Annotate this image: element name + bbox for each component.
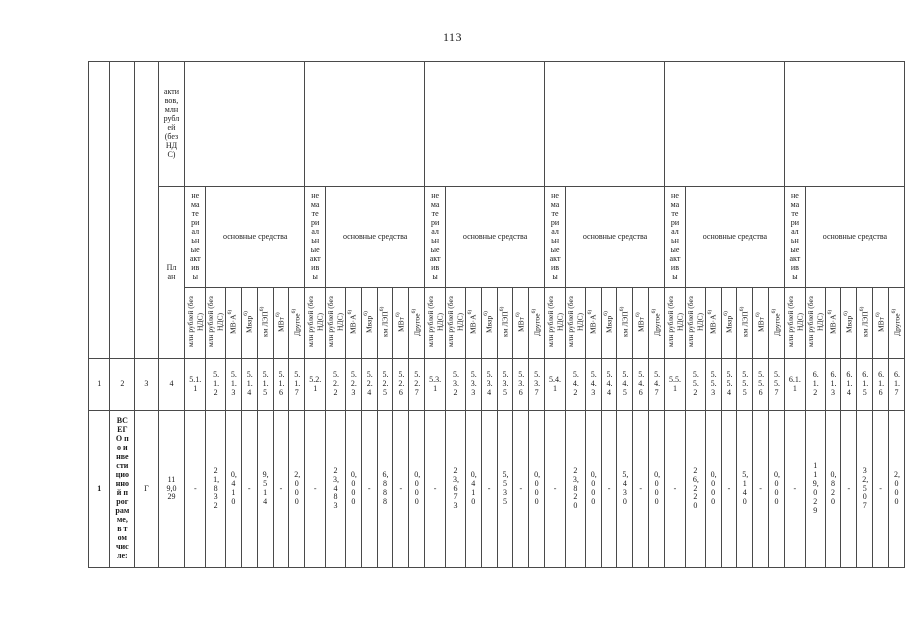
- value-cell: 2,000: [289, 411, 305, 568]
- unit-mln-rub-intangible-text: млн рублей (без НДС): [546, 290, 565, 354]
- unit-mvar: Мвар6): [601, 288, 617, 359]
- row-number-cell: 1: [89, 411, 110, 568]
- value-cell: -: [753, 411, 769, 568]
- column-number-cell-text: 5.1.2: [213, 371, 218, 398]
- unit-mln-rub-fixed: млн рублей (без НДС): [446, 288, 466, 359]
- column-number-cell-text: 5.4.1: [549, 376, 561, 394]
- unit-mln-rub-fixed-text: млн рублей (без НДС): [566, 290, 585, 354]
- column-number-cell: 6.1.4: [841, 359, 857, 411]
- page-number: 113: [0, 30, 905, 45]
- column-number-cell-text: 5.3.6: [518, 371, 523, 398]
- unit-mva-text: МВ·А6): [708, 290, 718, 354]
- unit-mln-rub-intangible-text: млн рублей (без НДС): [186, 290, 205, 354]
- intangible-assets-header: нематериальные активы: [185, 187, 206, 288]
- value-cell-text: 32,507: [862, 467, 867, 512]
- column-number-cell: 6.1.6: [873, 359, 889, 411]
- column-number-cell: 5.2.6: [393, 359, 409, 411]
- column-number-cell: 5.2.3: [345, 359, 361, 411]
- footnote-marker: 6): [723, 311, 729, 316]
- unit-other-text: Другое6): [292, 290, 302, 354]
- unit-mva: МВ·А6): [465, 288, 481, 359]
- column-number-cell: 3: [135, 359, 158, 411]
- value-cell-text: 23,483: [333, 467, 338, 512]
- value-cell: 9,514: [257, 411, 273, 568]
- column-number-cell-text: 5.5.3: [711, 371, 716, 398]
- unit-mw: МВт6): [753, 288, 769, 359]
- intangible-assets-header: нематериальные активы: [305, 187, 326, 288]
- table-body: активов, млн рублей (без НДС)Планнематер…: [89, 62, 905, 568]
- unit-mln-rub-intangible: млн рублей (без НДС): [664, 288, 685, 359]
- unit-mvar: Мвар6): [241, 288, 257, 359]
- unit-mln-rub-fixed: млн рублей (без НДС): [206, 288, 226, 359]
- column-number-cell: 5.4.1: [545, 359, 566, 411]
- value-cell-text: 119,029: [813, 462, 818, 516]
- value-cell: 5,430: [617, 411, 633, 568]
- unit-mva: МВ·А6): [226, 288, 242, 359]
- column-number-cell-text: 5.2.4: [367, 371, 372, 398]
- unit-km-lep-text: км ЛЭП6): [380, 290, 390, 354]
- unit-other-text: Другое6): [772, 290, 782, 354]
- plan-header-cell: План: [158, 187, 185, 359]
- column-number-cell: 5.1.6: [273, 359, 289, 411]
- value-cell: -: [784, 411, 805, 568]
- fixed-assets-header: основные средства: [805, 187, 904, 288]
- unit-km-lep-text: км ЛЭП6): [740, 290, 750, 354]
- value-cell: -: [664, 411, 685, 568]
- column-number-cell-text: 5.5.7: [774, 371, 779, 398]
- unit-mw: МВт6): [273, 288, 289, 359]
- footnote-marker: 6): [635, 312, 641, 317]
- column-number-cell-text: 5.3.5: [502, 371, 507, 398]
- value-cell: -: [513, 411, 529, 568]
- unit-mw: МВт6): [633, 288, 649, 359]
- row-name-cell-text: ВСЕГО по инвестиционной программе, в том…: [115, 417, 129, 560]
- unit-mvar: Мвар6): [841, 288, 857, 359]
- footnote-marker: 6): [515, 312, 521, 317]
- unit-mvar-text: Мвар6): [844, 290, 854, 354]
- footnote-marker: 6): [483, 311, 489, 316]
- column-number-cell-text: 5.5.5: [742, 371, 747, 398]
- value-cell: -: [241, 411, 257, 568]
- footnote-marker: 6): [619, 306, 625, 311]
- unit-other: Другое6): [888, 288, 904, 359]
- unit-mw-text: МВт6): [876, 290, 886, 354]
- fixed-assets-header: основные средства: [326, 187, 425, 288]
- column-number-cell-text: 5.4.7: [654, 371, 659, 398]
- value-cell-text: 5,140: [742, 471, 747, 507]
- value-cell: 0,000: [345, 411, 361, 568]
- value-cell: 2,000: [888, 411, 904, 568]
- unit-km-lep: км ЛЭП6): [857, 288, 873, 359]
- value-cell: 6,888: [377, 411, 393, 568]
- intangible-assets-header: нематериальные активы: [664, 187, 685, 288]
- empty-header-col3: [135, 62, 158, 359]
- footnote-marker: 6): [739, 306, 745, 311]
- column-number-cell: 2: [110, 359, 135, 411]
- unit-mln-rub-fixed: млн рублей (без НДС): [685, 288, 705, 359]
- column-number-cell-text: 5.4.5: [622, 371, 627, 398]
- unit-mln-rub-intangible: млн рублей (без НДС): [784, 288, 805, 359]
- column-number-cell-text: 5.1.7: [294, 371, 299, 398]
- intangible-assets-header: нематериальные активы: [784, 187, 805, 288]
- column-number-cell-text: 5.3.1: [429, 376, 441, 394]
- column-number-cell-text: 5.1.5: [263, 371, 268, 398]
- unit-mln-rub-fixed-text: млн рублей (без НДС): [206, 290, 225, 354]
- value-cell: -: [841, 411, 857, 568]
- column-number-cell-text: 6.1.3: [831, 371, 836, 398]
- column-number-cell: 5.1.4: [241, 359, 257, 411]
- unit-km-lep-text: км ЛЭП6): [500, 290, 510, 354]
- unit-mln-rub-fixed: млн рублей (без НДС): [566, 288, 586, 359]
- unit-mva: МВ·А6): [345, 288, 361, 359]
- unit-mvar: Мвар6): [361, 288, 377, 359]
- unit-other-text: Другое6): [652, 290, 662, 354]
- fixed-assets-header: основные средства: [566, 187, 665, 288]
- unit-mw: МВт6): [393, 288, 409, 359]
- investment-program-table: активов, млн рублей (без НДС)Планнематер…: [88, 61, 905, 568]
- column-number-cell: 5.5.7: [769, 359, 785, 411]
- footnote-marker: 6): [859, 306, 865, 311]
- plan-header-cell-text: План: [165, 264, 178, 282]
- unit-mln-rub-fixed-text: млн рублей (без НДС): [806, 290, 825, 354]
- footnote-marker: 6): [587, 309, 593, 314]
- value-cell-text: 0,000: [591, 471, 596, 507]
- unit-mln-rub-fixed: млн рублей (без НДС): [805, 288, 825, 359]
- footnote-marker: 6): [875, 312, 881, 317]
- footnote-marker: 6): [363, 311, 369, 316]
- value-cell: -: [633, 411, 649, 568]
- column-number-cell-text: 5.3.4: [487, 371, 492, 398]
- value-cell: 0,410: [226, 411, 242, 568]
- value-cell: -: [393, 411, 409, 568]
- footnote-marker: 6): [395, 312, 401, 317]
- column-number-cell: 5.1.5: [257, 359, 273, 411]
- footnote-marker: 6): [651, 308, 657, 313]
- value-cell: -: [361, 411, 377, 568]
- unit-mln-rub-intangible: млн рублей (без НДС): [425, 288, 446, 359]
- column-number-cell: 6.1.5: [857, 359, 873, 411]
- unit-km-lep: км ЛЭП6): [617, 288, 633, 359]
- unit-mw: МВт6): [513, 288, 529, 359]
- intangible-assets-header-text: нематериальные активы: [550, 192, 561, 282]
- column-number-cell-text: 6.1.2: [813, 371, 818, 398]
- footnote-marker: 6): [347, 309, 353, 314]
- column-number-cell-text: 5.5.6: [758, 371, 763, 398]
- unit-mvar-text: Мвар6): [244, 290, 254, 354]
- footnote-marker: 6): [771, 308, 777, 313]
- column-number-cell-text: 5.4.3: [591, 371, 596, 398]
- fixed-assets-header: основные средства: [446, 187, 545, 288]
- column-number-cell: 5.5.5: [737, 359, 753, 411]
- unit-mln-rub-fixed: млн рублей (без НДС): [326, 288, 346, 359]
- footnote-marker: 6): [411, 308, 417, 313]
- column-number-cell: 5.1.7: [289, 359, 305, 411]
- column-number-cell: 5.3.1: [425, 359, 446, 411]
- value-cell: 0,000: [529, 411, 545, 568]
- column-number-cell-text: 5.3.7: [534, 371, 539, 398]
- column-number-cell: 5.5.1: [664, 359, 685, 411]
- plan-total-cell: 119,029: [158, 411, 185, 568]
- plan-total-cell-text: 119,029: [165, 476, 177, 503]
- intangible-assets-header-text: нематериальные активы: [190, 192, 201, 282]
- value-cell: 119,029: [805, 411, 825, 568]
- assets-header-cell: активов, млн рублей (без НДС): [158, 62, 185, 187]
- column-number-cell-text: 5.1.4: [247, 371, 252, 398]
- footnote-marker: 6): [755, 312, 761, 317]
- unit-mln-rub-intangible: млн рублей (без НДС): [545, 288, 566, 359]
- unit-other: Другое6): [649, 288, 665, 359]
- column-number-cell: 6.1.2: [805, 359, 825, 411]
- column-number-cell-text: 6.1.5: [862, 371, 867, 398]
- column-number-cell: 4: [158, 359, 185, 411]
- value-cell: 0,820: [825, 411, 841, 568]
- column-number-cell-text: 6.1.6: [878, 371, 883, 398]
- value-cell-text: 0,000: [351, 471, 356, 507]
- unit-mw-text: МВт6): [516, 290, 526, 354]
- column-number-cell-text: 5.2.2: [333, 371, 338, 398]
- group-header-empty-cell: [425, 62, 545, 187]
- column-number-cell-text: 5.5.4: [726, 371, 731, 398]
- column-number-cell: 5.5.2: [685, 359, 705, 411]
- column-number-cell: 1: [89, 359, 110, 411]
- unit-km-lep-text: км ЛЭП6): [860, 290, 870, 354]
- value-cell: 5,140: [737, 411, 753, 568]
- footnote-marker: 6): [843, 311, 849, 316]
- column-number-cell-text: 5.2.3: [351, 371, 356, 398]
- unit-mvar: Мвар6): [481, 288, 497, 359]
- value-cell-text: 0,000: [711, 471, 716, 507]
- value-cell: -: [481, 411, 497, 568]
- unit-mln-rub-fixed-text: млн рублей (без НДС): [686, 290, 705, 354]
- unit-mln-rub-intangible-text: млн рублей (без НДС): [306, 290, 325, 354]
- unit-km-lep-text: км ЛЭП6): [260, 290, 270, 354]
- column-number-cell: 5.3.4: [481, 359, 497, 411]
- value-cell-text: 0,410: [471, 471, 476, 507]
- value-cell-text: 9,514: [263, 471, 268, 507]
- value-cell-text: 0,000: [654, 471, 659, 507]
- unit-mvar-text: Мвар6): [364, 290, 374, 354]
- column-number-cell: 5.5.3: [705, 359, 721, 411]
- column-number-cell-text: 5.3.3: [471, 371, 476, 398]
- value-cell: -: [185, 411, 206, 568]
- intangible-assets-header: нематериальные активы: [545, 187, 566, 288]
- value-cell: -: [545, 411, 566, 568]
- unit-mln-rub-fixed-text: млн рублей (без НДС): [326, 290, 345, 354]
- value-cell: 0,000: [649, 411, 665, 568]
- value-cell-text: 23,820: [573, 467, 578, 512]
- unit-mva-text: МВ·А6): [348, 290, 358, 354]
- unit-mln-rub-intangible-text: млн рублей (без НДС): [666, 290, 685, 354]
- unit-mw-text: МВт6): [636, 290, 646, 354]
- value-cell-text: 5,430: [622, 471, 627, 507]
- unit-mw-text: МВт6): [756, 290, 766, 354]
- value-cell-text: 2,000: [294, 471, 299, 507]
- column-number-cell-text: 5.4.2: [573, 371, 578, 398]
- value-cell-text: 0,000: [534, 471, 539, 507]
- unit-km-lep: км ЛЭП6): [377, 288, 393, 359]
- column-number-cell-text: 5.1.6: [278, 371, 283, 398]
- value-cell: 23,483: [326, 411, 346, 568]
- footnote-marker: 6): [259, 306, 265, 311]
- unit-mvar-text: Мвар6): [724, 290, 734, 354]
- row-name-cell: ВСЕГО по инвестиционной программе, в том…: [110, 411, 135, 568]
- column-number-cell-text: 5.2.1: [309, 376, 321, 394]
- unit-other: Другое6): [409, 288, 425, 359]
- column-number-cell: 5.4.4: [601, 359, 617, 411]
- column-number-cell: 6.1.7: [888, 359, 904, 411]
- column-number-cell: 5.2.5: [377, 359, 393, 411]
- group-header-empty-cell: [784, 62, 904, 187]
- value-cell: 23,820: [566, 411, 586, 568]
- unit-mvar: Мвар6): [721, 288, 737, 359]
- column-number-cell: 5.3.7: [529, 359, 545, 411]
- value-cell-text: 0,000: [414, 471, 419, 507]
- column-number-cell-text: 5.2.7: [414, 371, 419, 398]
- column-number-cell-text: 5.1.3: [231, 371, 236, 398]
- unit-km-lep: км ЛЭП6): [497, 288, 513, 359]
- column-number-cell: 5.3.3: [465, 359, 481, 411]
- footnote-marker: 6): [827, 309, 833, 314]
- column-number-cell-text: 6.1.1: [789, 376, 801, 394]
- value-cell: 21,832: [206, 411, 226, 568]
- empty-header-col2: [110, 62, 135, 359]
- footnote-marker: 6): [603, 311, 609, 316]
- value-cell-text: 5,535: [502, 471, 507, 507]
- column-number-cell: 5.2.7: [409, 359, 425, 411]
- column-number-cell: 5.2.1: [305, 359, 326, 411]
- value-cell: 26,220: [685, 411, 705, 568]
- value-cell-text: 26,220: [693, 467, 698, 512]
- value-cell: 0,000: [705, 411, 721, 568]
- value-cell-text: 21,832: [213, 467, 218, 512]
- column-number-cell-text: 5.3.2: [453, 371, 458, 398]
- value-cell-text: 2,000: [894, 471, 899, 507]
- value-cell: 32,507: [857, 411, 873, 568]
- value-cell: 0,000: [585, 411, 601, 568]
- footnote-marker: 6): [275, 312, 281, 317]
- column-number-cell: 5.5.6: [753, 359, 769, 411]
- column-number-cell: 5.5.4: [721, 359, 737, 411]
- footnote-marker: 6): [227, 309, 233, 314]
- fixed-assets-header: основные средства: [685, 187, 784, 288]
- unit-mva: МВ·А6): [585, 288, 601, 359]
- group-header-empty-cell: [664, 62, 784, 187]
- intangible-assets-header-text: нематериальные активы: [430, 192, 441, 282]
- column-number-cell: 5.4.5: [617, 359, 633, 411]
- column-number-cell-text: 5.2.6: [398, 371, 403, 398]
- column-number-cell: 5.1.3: [226, 359, 242, 411]
- unit-mva-text: МВ·А6): [588, 290, 598, 354]
- unit-other: Другое6): [529, 288, 545, 359]
- column-number-cell: 5.4.7: [649, 359, 665, 411]
- unit-mva: МВ·А6): [705, 288, 721, 359]
- footnote-marker: 6): [707, 309, 713, 314]
- unit-km-lep-text: км ЛЭП6): [620, 290, 630, 354]
- unit-mva-text: МВ·А6): [828, 290, 838, 354]
- column-number-cell: 5.3.6: [513, 359, 529, 411]
- value-cell: -: [721, 411, 737, 568]
- column-number-cell: 6.1.3: [825, 359, 841, 411]
- unit-mln-rub-intangible: млн рублей (без НДС): [305, 288, 326, 359]
- footnote-marker: 6): [499, 306, 505, 311]
- intangible-assets-header: нематериальные активы: [425, 187, 446, 288]
- value-cell: -: [601, 411, 617, 568]
- footnote-marker: 6): [531, 308, 537, 313]
- column-number-cell: 5.3.2: [446, 359, 466, 411]
- unit-km-lep: км ЛЭП6): [257, 288, 273, 359]
- column-number-cell: 5.3.5: [497, 359, 513, 411]
- unit-mln-rub-intangible-text: млн рублей (без НДС): [786, 290, 805, 354]
- value-cell: -: [305, 411, 326, 568]
- fixed-assets-header: основные средства: [206, 187, 305, 288]
- column-number-cell: 5.2.4: [361, 359, 377, 411]
- column-number-cell: 5.4.2: [566, 359, 586, 411]
- unit-mva: МВ·А6): [825, 288, 841, 359]
- footnote-marker: 6): [243, 311, 249, 316]
- column-number-cell: 5.2.2: [326, 359, 346, 411]
- plan-mark-cell: Г: [135, 411, 158, 568]
- column-number-cell-text: 5.5.1: [669, 376, 681, 394]
- value-cell: -: [425, 411, 446, 568]
- unit-mva-text: МВ·А6): [228, 290, 238, 354]
- value-cell-text: 23,673: [453, 467, 458, 512]
- value-cell: 0,410: [465, 411, 481, 568]
- unit-mva-text: МВ·А6): [468, 290, 478, 354]
- value-cell: 5,535: [497, 411, 513, 568]
- column-number-cell: 5.4.6: [633, 359, 649, 411]
- unit-other: Другое6): [289, 288, 305, 359]
- column-number-cell-text: 5.2.5: [383, 371, 388, 398]
- value-cell-text: 6,888: [383, 471, 388, 507]
- assets-header-cell-text: активов, млн рублей (без НДС): [163, 88, 179, 160]
- column-number-cell-text: 6.1.4: [846, 371, 851, 398]
- intangible-assets-header-text: нематериальные активы: [310, 192, 321, 282]
- value-cell-text: 0,820: [831, 471, 836, 507]
- column-number-cell-text: 5.4.6: [638, 371, 643, 398]
- footnote-marker: 6): [467, 309, 473, 314]
- empty-header-col1: [89, 62, 110, 359]
- document-page: 113 активов, млн рублей (без НДС)Планнем…: [0, 0, 905, 639]
- group-header-empty-cell: [305, 62, 425, 187]
- intangible-assets-header-text: нематериальные активы: [789, 192, 800, 282]
- value-cell: -: [273, 411, 289, 568]
- footnote-marker: 6): [291, 308, 297, 313]
- column-number-cell-text: 5.5.2: [693, 371, 698, 398]
- value-cell: 0,000: [769, 411, 785, 568]
- column-number-cell: 6.1.1: [784, 359, 805, 411]
- unit-mw-text: МВт6): [396, 290, 406, 354]
- column-number-cell: 5.1.1: [185, 359, 206, 411]
- unit-other-text: Другое6): [892, 290, 902, 354]
- value-cell-text: 0,410: [231, 471, 236, 507]
- unit-mln-rub-intangible: млн рублей (без НДС): [185, 288, 206, 359]
- value-cell: -: [873, 411, 889, 568]
- footnote-marker: 6): [379, 306, 385, 311]
- unit-mw: МВт6): [873, 288, 889, 359]
- intangible-assets-header-text: нематериальные активы: [669, 192, 680, 282]
- unit-mln-rub-fixed-text: млн рублей (без НДС): [446, 290, 465, 354]
- unit-mvar-text: Мвар6): [604, 290, 614, 354]
- footnote-marker: 6): [891, 308, 897, 313]
- column-number-cell: 5.1.2: [206, 359, 226, 411]
- unit-km-lep: км ЛЭП6): [737, 288, 753, 359]
- value-cell: 0,000: [409, 411, 425, 568]
- unit-mln-rub-intangible-text: млн рублей (без НДС): [426, 290, 445, 354]
- unit-other-text: Другое6): [532, 290, 542, 354]
- value-cell-text: 0,000: [774, 471, 779, 507]
- unit-other-text: Другое6): [412, 290, 422, 354]
- column-number-cell-text: 5.4.4: [607, 371, 612, 398]
